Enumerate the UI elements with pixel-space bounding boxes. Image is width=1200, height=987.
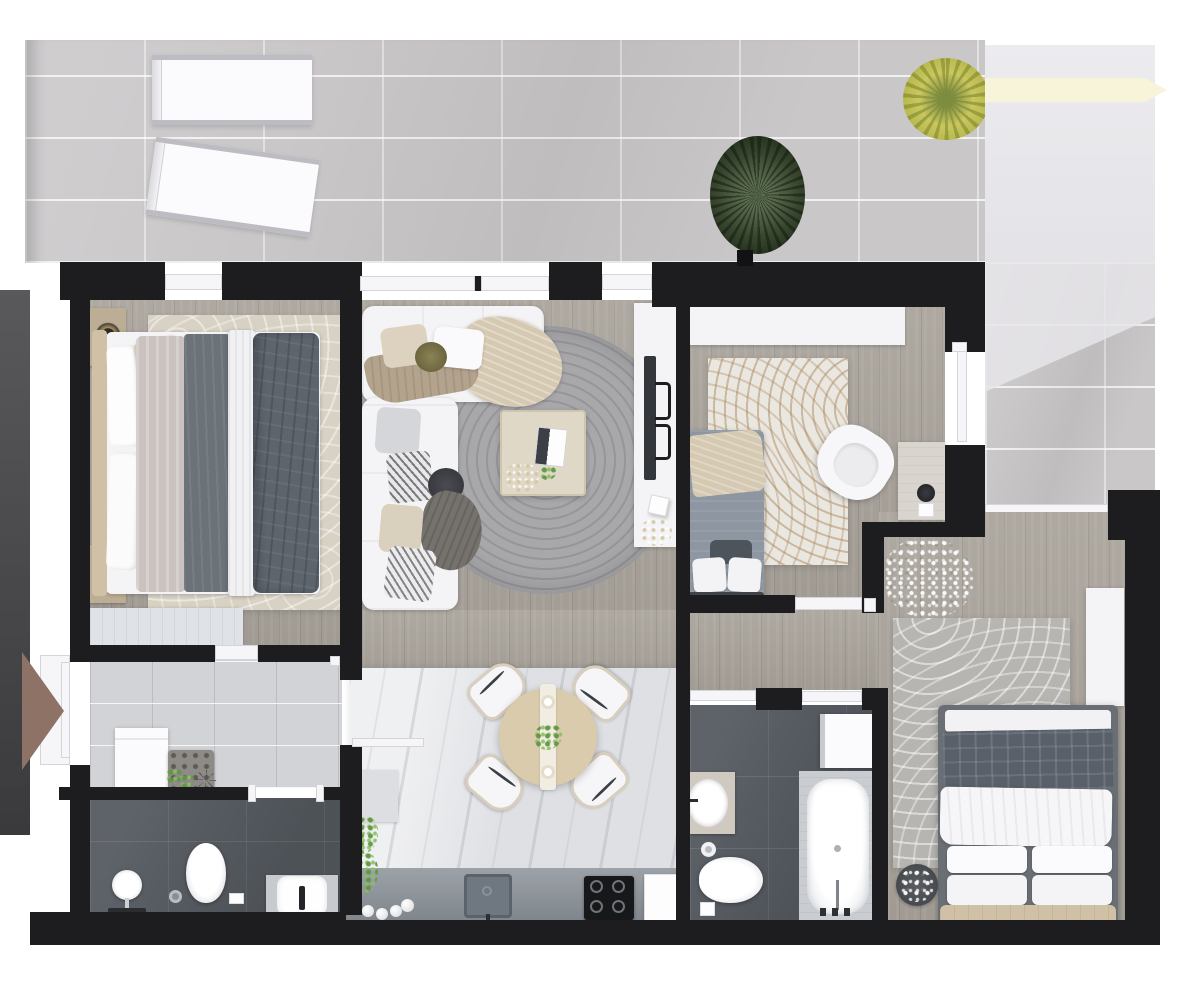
bath2-door-sill-left (690, 690, 756, 701)
wall-bottom-center (345, 920, 680, 945)
kids-bed-throw-beige (687, 428, 767, 497)
wall-hall-bath1 (59, 787, 250, 800)
coffee-table-flowers (505, 462, 539, 492)
wall-terrace-block (1108, 490, 1160, 540)
canopy-highlight (985, 78, 1167, 102)
desk-paper (918, 503, 934, 517)
runner-ring (541, 765, 555, 779)
wall-bed1-right (340, 262, 362, 645)
runner-ring (541, 695, 555, 709)
washing-machine-cabinet (115, 728, 168, 787)
wall-bottom-right (680, 920, 1160, 945)
duvet-runner-white (228, 330, 255, 596)
sofa-pillow-pattern2 (383, 545, 438, 603)
third-bed-wardrobe (1086, 588, 1124, 706)
third-bed-pillow (947, 846, 1027, 873)
duvet-gray (184, 334, 230, 592)
third-bed-pillow (947, 875, 1027, 905)
decor-egg (401, 899, 414, 912)
wall-bath2-left (676, 613, 690, 925)
third-bed-pillow (1032, 846, 1112, 873)
wall-living-kids-divider (676, 300, 690, 613)
burner (590, 900, 603, 913)
master-bed-headboard (92, 330, 107, 596)
vanity-faucet (299, 886, 305, 910)
kids-balcony-door-frame (952, 342, 967, 352)
burner (590, 880, 603, 893)
sun-lounger (152, 55, 312, 125)
pedestal-sink (112, 870, 142, 900)
wall-kids-bottom (676, 595, 795, 613)
wall-kids-top (652, 262, 945, 307)
wall-bed1-bottom-left (70, 645, 215, 662)
lounger-hinge (152, 60, 162, 120)
yellow-plant (903, 58, 989, 140)
kids-bed-pillow (692, 557, 727, 593)
bed1-balcony-door-sill (165, 274, 222, 290)
third-bed-pillow (1032, 875, 1112, 905)
wall-hall-right-lower (340, 745, 362, 915)
speaker-bracket (655, 424, 671, 460)
kitchen-door-frame (330, 656, 340, 666)
toilet-1 (186, 843, 226, 903)
coffee-table-book (534, 427, 568, 468)
kids-door-sill (795, 597, 862, 610)
palm-plant (710, 136, 805, 254)
dried-flowers (640, 518, 672, 546)
vanity-2-basin (688, 779, 728, 827)
wall-bath2-top-mid (756, 688, 802, 710)
kitchen-sink (464, 874, 512, 918)
bath1-door-frame (248, 784, 256, 802)
speaker-bracket (655, 382, 671, 420)
wall-hall-right-upper (340, 645, 362, 680)
floor-drain (169, 890, 182, 903)
tub-faucet (836, 880, 839, 910)
wall-bottom-left (30, 912, 346, 945)
bed3-door-frame (864, 598, 876, 612)
wall-top-c (549, 262, 602, 300)
duvet-dark (253, 333, 319, 593)
kitchen-open-door-leaf (352, 738, 424, 747)
bath2-box (700, 902, 715, 916)
bath1-door-frame (316, 784, 324, 802)
chair-stripe (479, 670, 506, 696)
living-window-2 (481, 276, 549, 291)
tub-fixture (820, 908, 854, 916)
sofa-pillow-olive (415, 342, 447, 372)
wall-hall-bath1-right (322, 787, 346, 800)
sink-drain (482, 886, 492, 896)
living-balcony-door-sill (602, 274, 652, 290)
kids-bed-pillow (727, 557, 762, 593)
bed-bench (90, 608, 243, 646)
bed1-door-sill (215, 645, 258, 660)
pot-plant-leaves (900, 868, 934, 902)
soap-box (229, 893, 244, 904)
wall-kids-right-lower (945, 445, 985, 535)
burner (612, 900, 625, 913)
babys-breath-flowers (884, 538, 974, 618)
floor-plan-render (0, 0, 1200, 987)
cutting-board (644, 874, 677, 922)
toilet-2 (699, 857, 763, 903)
burner (612, 880, 625, 893)
living-window-1 (360, 276, 475, 291)
washing-machine-2 (820, 714, 875, 768)
bath2-door-sill-right (802, 691, 862, 702)
decor-egg (376, 908, 388, 920)
wall-kids-right-upper (945, 262, 985, 352)
third-bed-plaid-blanket (942, 729, 1113, 792)
wall-bath2-right (872, 697, 888, 925)
decor-egg (362, 905, 374, 917)
kids-wardrobe (687, 307, 905, 345)
cube-stool (647, 494, 670, 517)
third-bed-duvet (940, 787, 1113, 848)
duvet-light (136, 336, 186, 592)
wall-right-outer (1125, 535, 1160, 930)
sofa-pillow-pattern (386, 450, 435, 504)
wall-left-upper (70, 262, 90, 655)
sofa-pillow-gray (374, 407, 421, 456)
desk-stool (917, 484, 935, 502)
toilet-paper-roll (701, 842, 716, 857)
kids-balcony-door-leaf (957, 350, 967, 442)
tub-drain (834, 845, 841, 852)
door-handle-knob (737, 250, 753, 266)
